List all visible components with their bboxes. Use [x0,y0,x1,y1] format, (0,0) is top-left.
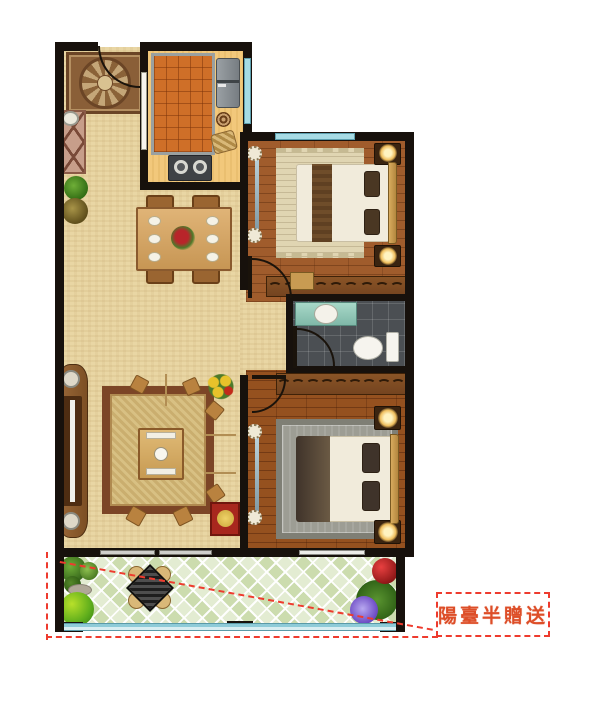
tea-tray [146,432,176,439]
hanger-icon [314,282,328,292]
lamp-glow [378,522,398,542]
wall-balcony-right [396,557,405,632]
wall-top-right [140,42,252,51]
bedroom1-window [275,133,355,140]
foyer-medallion-center [97,75,113,91]
balcony-dash-left [46,552,48,640]
wall-kitchen-bottom [140,182,248,190]
master-console-screen [255,436,259,516]
console-plate [62,370,80,388]
hanger-icon [390,282,404,292]
dinner-plate [148,234,161,244]
hanger-icon [375,282,389,292]
fridge-handle [218,84,226,87]
floorplan-page: 陽臺半贈送 [0,0,608,705]
side-table-top [217,510,234,527]
kitchen-slide-door [141,72,147,150]
dinner-plate [206,252,219,262]
stove-burner [193,160,207,174]
bed-bench [290,272,314,290]
balcony-dash-bottom [46,636,438,638]
hanger-icon [320,379,334,389]
kitchen-parquet-mat [151,53,215,155]
bed-pillow [364,209,380,235]
balcony-sliding-door [100,550,155,555]
hanger-icon [360,282,374,292]
balcony-sliding-door [159,550,212,555]
hanger-icon [391,379,405,389]
wall-right [405,132,414,557]
hanger-icon [344,282,358,292]
wall-bathroom-bottom [286,366,414,373]
master-window [299,550,365,555]
kitchen-window [244,58,251,124]
wall-mid-upper [240,132,248,290]
wall-left [55,42,64,557]
table-centerpiece-flowers [171,226,195,250]
bathroom-sink [314,304,338,324]
hanger-icon [291,379,305,389]
hanger-icon [377,379,391,389]
balcony-glass-rail [64,623,396,631]
balcony-red-flowers [372,558,398,584]
balcony-note-label: 陽臺半贈送 [438,601,548,628]
bed-runner [312,164,332,242]
lamp-glow [379,144,397,162]
hanger-icon [329,282,343,292]
wall-mid-lower [240,375,248,557]
fridge-divider [217,80,239,83]
balcony-round-bush [60,592,94,626]
console-plate [62,512,80,530]
hanger-icon [306,379,320,389]
wardrobe-master [276,373,406,395]
dinner-plate [148,216,161,226]
potted-plant [62,198,88,224]
bedroom1-console-screen [255,156,259,234]
bed-headboard [390,434,399,524]
wall-bathroom-top [286,294,414,301]
bed-pillow [364,171,380,197]
toilet-bowl [353,336,383,360]
stove-burner [174,160,188,174]
hanger-icon [362,379,376,389]
decor-bowl [62,111,79,126]
potted-plant [64,176,88,200]
decor-gear [247,146,262,161]
wall-bathroom-left [286,294,293,373]
decor-gear [247,424,262,439]
teapot [154,447,168,461]
bed-pillow [362,443,380,473]
wall-balcony-left [55,557,64,632]
toilet-tank [386,332,399,362]
balcony-note-box: 陽臺半贈送 [436,592,550,637]
dinner-plate [206,216,219,226]
sofa-divider [204,434,236,436]
master-blanket-fold [296,436,330,522]
lamp-glow [379,247,397,265]
tv-screen [70,400,75,502]
dinner-plate [206,234,219,244]
decor-gear [247,510,262,525]
bed-headboard [388,162,397,244]
bed-pillow [362,481,380,511]
hanger-icon [334,379,348,389]
hanger-icon [348,379,362,389]
decor-gear [247,228,262,243]
fridge [216,58,240,108]
kitchen-decor-dish [216,112,231,127]
sofa-divider [165,374,167,406]
dinner-plate [148,252,161,262]
sunflower-vase [206,374,236,402]
sofa-divider [204,472,236,474]
lamp-glow [378,408,398,428]
tea-tray [146,468,176,475]
